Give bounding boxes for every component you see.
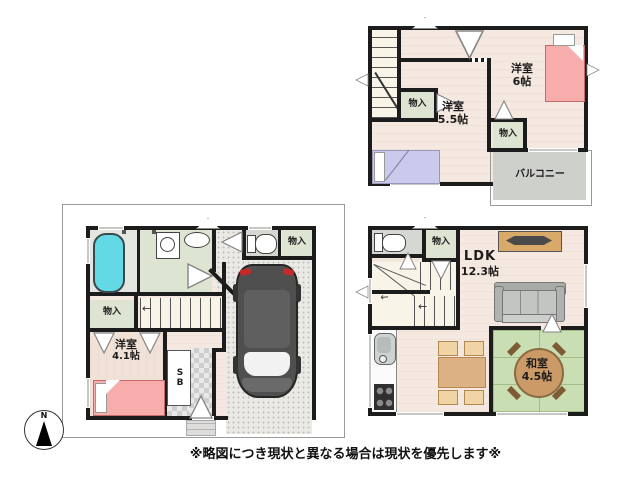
car-wheel [233, 284, 238, 302]
dining-table [438, 357, 486, 388]
bed-pillow [374, 152, 385, 182]
wall-segment [212, 348, 216, 416]
wall-segment [401, 88, 434, 92]
window-marker-icon [356, 68, 368, 92]
dining-chair [438, 390, 458, 405]
wall-segment [368, 254, 426, 258]
window-segment [528, 148, 578, 152]
window-segment [584, 264, 588, 308]
compass-north-label: N [25, 411, 63, 420]
window-segment [396, 412, 444, 416]
window-segment [86, 378, 90, 408]
door-swing-icon [543, 314, 561, 332]
closet-label: 物入 [426, 237, 456, 248]
car-wheel [296, 356, 301, 374]
wall-segment [222, 262, 226, 348]
dining-chair [464, 390, 484, 405]
room-label-ldk: LDK 12.3帖 [442, 249, 518, 278]
window-marker-icon [356, 280, 368, 304]
disclaimer-note: ※略図につき現状と異なる場合は現状を優先します※ [70, 443, 621, 462]
wall-segment [86, 416, 192, 420]
bed-pillow [95, 383, 107, 413]
wall-segment [86, 328, 136, 332]
washing-machine-drum [160, 237, 175, 252]
window-segment [86, 238, 90, 264]
dining-chair [464, 341, 484, 356]
door-swing-icon [222, 232, 242, 252]
door-swing-icon [188, 264, 212, 288]
wall-segment [487, 58, 491, 152]
closet-label: 物入 [282, 237, 312, 248]
kitchen-faucet-icon [379, 355, 387, 363]
door-swing-icon [400, 253, 416, 269]
kitchen-sink-basin [377, 337, 391, 353]
car [236, 264, 298, 398]
window-segment [248, 226, 272, 230]
stairs-left-plan [140, 298, 222, 328]
wall-segment [368, 26, 588, 30]
car-roof [244, 290, 290, 348]
balcony-label: バルコニー [498, 169, 582, 181]
wall-segment [523, 118, 527, 152]
toilet-bowl [382, 234, 406, 252]
entrance-tile-lower [167, 406, 189, 416]
stairs-arrow: ← [418, 300, 427, 313]
compass: N [24, 410, 64, 450]
floor-plan-canvas: ← [0, 0, 621, 480]
room-label-bedroom41: 洋室 4.1帖 [93, 338, 159, 363]
closet-label: 物入 [90, 307, 134, 318]
bed-pillow [553, 34, 575, 46]
car-wheel [233, 356, 238, 374]
wall-segment [134, 296, 138, 330]
wall-segment [469, 58, 487, 62]
shoe-box-label: SB [171, 360, 185, 396]
wall-segment [489, 330, 493, 412]
wall-segment [368, 290, 430, 294]
wall-segment [489, 326, 541, 330]
car-wheel [296, 284, 301, 302]
compass-needle-icon [36, 421, 52, 446]
vent-icon [412, 17, 438, 29]
wall-segment [214, 416, 228, 420]
door-swing-icon [190, 396, 212, 418]
closet-label: 物入 [401, 99, 434, 110]
toilet-bowl [255, 234, 277, 254]
window-segment [496, 412, 568, 416]
wall-segment [278, 230, 281, 258]
sofa-seat [502, 290, 557, 316]
door-swing-icon [456, 31, 483, 58]
wall-segment [136, 328, 226, 332]
tv [506, 236, 552, 245]
kitchen-stove [374, 384, 394, 410]
closet-label: 物入 [493, 129, 523, 140]
wall-segment [561, 326, 584, 330]
car-hood [242, 378, 292, 392]
wall-segment [212, 230, 216, 272]
dining-chair [438, 341, 458, 356]
wall-segment [137, 230, 140, 292]
window-segment [98, 226, 124, 230]
wall-segment [368, 226, 588, 230]
stairs-arrow: ← [142, 302, 151, 315]
window-marker-icon [587, 58, 599, 82]
washbasin [184, 232, 210, 248]
wall-segment [242, 226, 246, 260]
door-swing-icon [495, 101, 513, 119]
bathtub [93, 233, 125, 293]
vent-icon [412, 217, 438, 229]
wall-segment [584, 226, 588, 416]
entrance-step [186, 420, 216, 436]
room-label-bedroom6: 洋室 6帖 [494, 62, 550, 88]
car-windshield [244, 352, 290, 376]
room-label-washitsu: 和室 4.5帖 [510, 357, 564, 383]
window-segment [368, 278, 372, 304]
wall-segment [397, 58, 469, 62]
faucet-icon [122, 230, 126, 234]
